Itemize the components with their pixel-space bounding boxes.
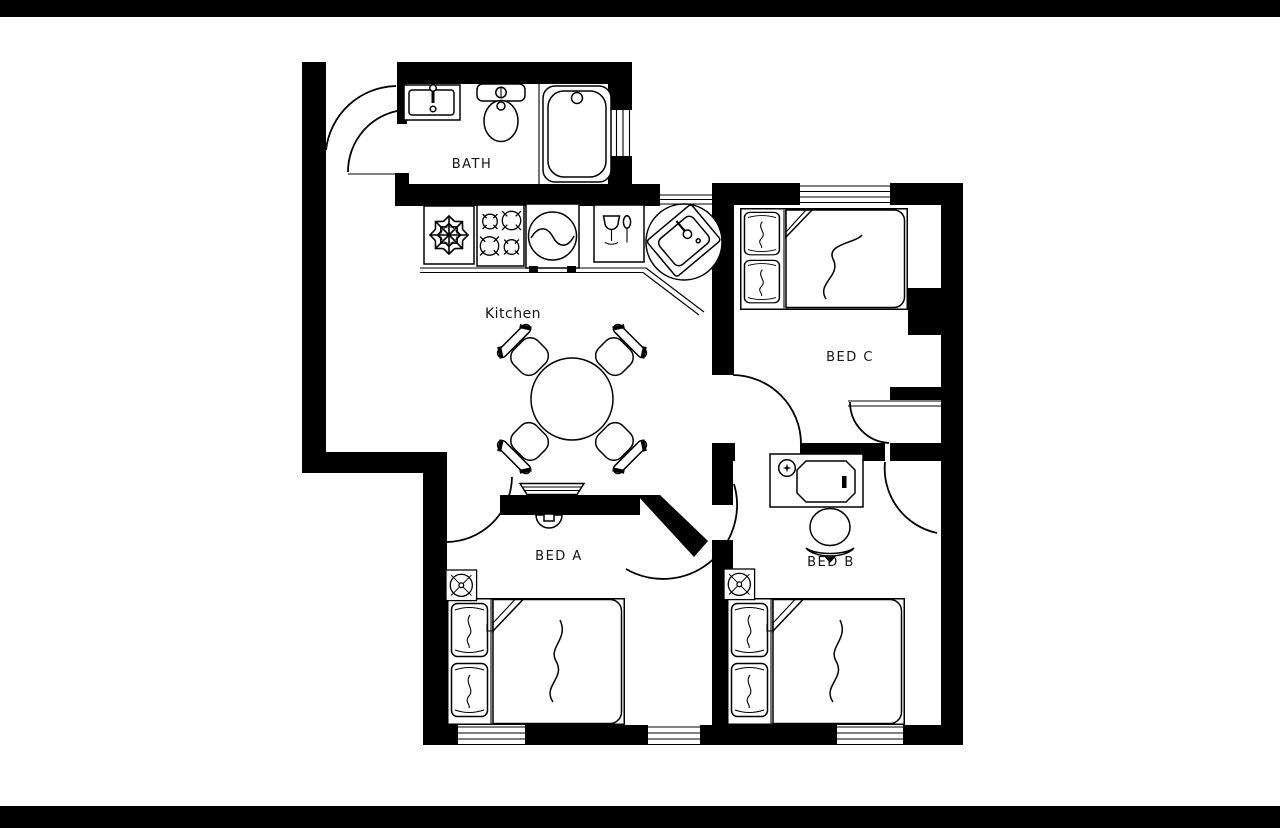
bed-single (741, 209, 908, 310)
room-label-bath: BATH (452, 157, 493, 172)
letterbox-top (0, 0, 1280, 17)
bed-c-furniture (741, 209, 908, 310)
floor-plan-screenshot: BATH Kitchen BED A BED B BED C (0, 0, 1280, 828)
window-bedc-top (800, 186, 890, 203)
bed-double (728, 599, 905, 725)
laptop-icon (797, 461, 855, 502)
beda-kitchen-door-arc (446, 477, 512, 542)
bed-double (448, 599, 625, 725)
bed-b-furniture (724, 454, 904, 724)
window-bath-right (610, 108, 630, 156)
dishwasher-icon (594, 205, 644, 262)
bathtub (543, 86, 611, 182)
bathroom-fixtures (404, 84, 611, 184)
power-outlet-icon (779, 460, 796, 477)
window-bedb-bottom (837, 727, 903, 745)
bedc-door-arc (733, 375, 801, 443)
window-beda-bottom-2 (648, 727, 700, 745)
bedc-closet-door (848, 401, 941, 443)
bathroom-sink (404, 85, 460, 120)
room-label-bed-b: BED B (807, 555, 855, 570)
room-label-bed-c: BED C (826, 350, 874, 365)
dining-set (494, 321, 650, 477)
fridge-icon (424, 206, 474, 264)
walls (0, 0, 1280, 828)
ceiling-light-icon (446, 570, 477, 601)
bed-a-furniture (446, 570, 624, 724)
ceiling-light-icon (724, 569, 755, 600)
entry-door-arc (326, 86, 396, 150)
room-label-kitchen: Kitchen (485, 306, 541, 322)
bath-door-arc (348, 110, 403, 172)
kitchen-pass-sill (656, 195, 712, 204)
stove-icon (477, 205, 524, 266)
letterbox-bottom (0, 806, 1280, 828)
room-label-bed-a: BED A (535, 549, 583, 564)
toilet (477, 84, 525, 142)
dining-table (531, 358, 613, 440)
washer-icon (526, 204, 579, 272)
desk (770, 454, 863, 507)
window-beda-bottom-1 (458, 727, 525, 745)
bedb-door-arc (885, 462, 937, 533)
floor-plan: BATH Kitchen BED A BED B BED C (0, 0, 1280, 828)
kitchen-counter (420, 204, 722, 528)
